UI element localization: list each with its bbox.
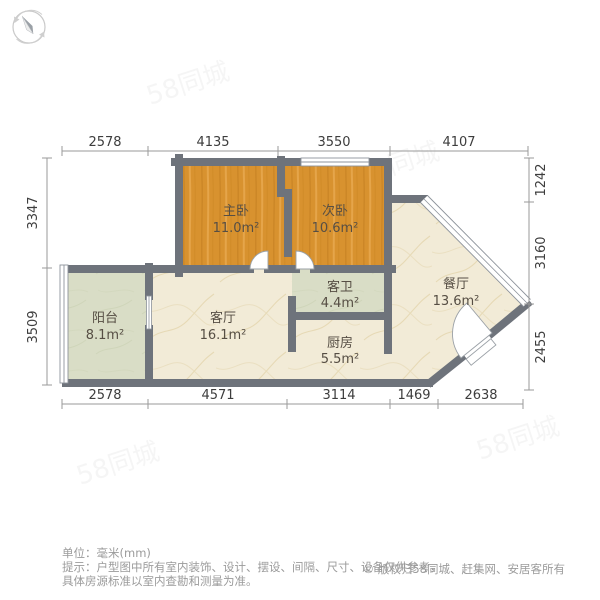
dim-label-bottom: 3114 xyxy=(322,388,355,403)
room-area-balcony: 8.1m² xyxy=(86,328,125,343)
room-label-master-bedroom: 主卧 xyxy=(223,204,249,219)
room-area-master-bedroom: 11.0m² xyxy=(213,221,260,236)
dim-label-top: 4107 xyxy=(442,135,475,150)
watermark-text: 58同城 xyxy=(143,57,233,112)
dim-label-bottom: 2578 xyxy=(88,388,121,403)
dim-label-right: 3160 xyxy=(534,236,549,269)
room-label-bathroom: 客卫 xyxy=(327,279,353,295)
unit-note: 单位：毫米(mm) xyxy=(62,546,442,560)
room-label-kitchen: 厨房 xyxy=(327,335,353,351)
dim-label-right: 1242 xyxy=(534,163,549,196)
dim-label-left: 3347 xyxy=(26,196,41,229)
dim-label-bottom: 1469 xyxy=(397,388,430,403)
room-area-kitchen: 5.5m² xyxy=(321,352,360,367)
room-label-balcony: 阳台 xyxy=(92,311,118,326)
room-label-living-room: 客厅 xyxy=(210,310,236,326)
room-area-second-bedroom: 10.6m² xyxy=(312,221,359,236)
dim-label-top: 2578 xyxy=(88,135,121,150)
window-second-bedroom xyxy=(301,158,369,166)
room-area-dining-room: 13.6m² xyxy=(433,294,480,309)
compass-icon xyxy=(13,10,45,43)
room-label-dining-room: 餐厅 xyxy=(443,276,469,292)
dim-label-top: 3550 xyxy=(317,135,350,150)
room-area-living-room: 16.1m² xyxy=(200,328,247,343)
copyright-notice: © 版权归58同城、赶集网、安居客所有 xyxy=(363,561,565,577)
room-living-room xyxy=(149,269,292,383)
dim-label-top: 4135 xyxy=(196,135,229,150)
dim-label-right: 2455 xyxy=(534,330,549,363)
floorplan-canvas: 58同城 58同城 58同城 58同城 xyxy=(0,0,600,600)
watermark-text: 58同城 xyxy=(73,437,163,492)
room-label-second-bedroom: 次卧 xyxy=(322,203,348,219)
dim-label-bottom: 4571 xyxy=(201,388,234,403)
watermark-text: 58同城 xyxy=(473,412,563,467)
dim-label-left: 3509 xyxy=(26,310,41,343)
room-area-bathroom: 4.4m² xyxy=(321,296,360,311)
dim-label-bottom: 2638 xyxy=(464,388,497,403)
room-balcony xyxy=(64,269,149,383)
floorplan-page: 58同城 58同城 58同城 58同城 xyxy=(0,0,600,600)
balcony-sliding-door xyxy=(147,296,152,329)
window-balcony xyxy=(60,265,68,383)
